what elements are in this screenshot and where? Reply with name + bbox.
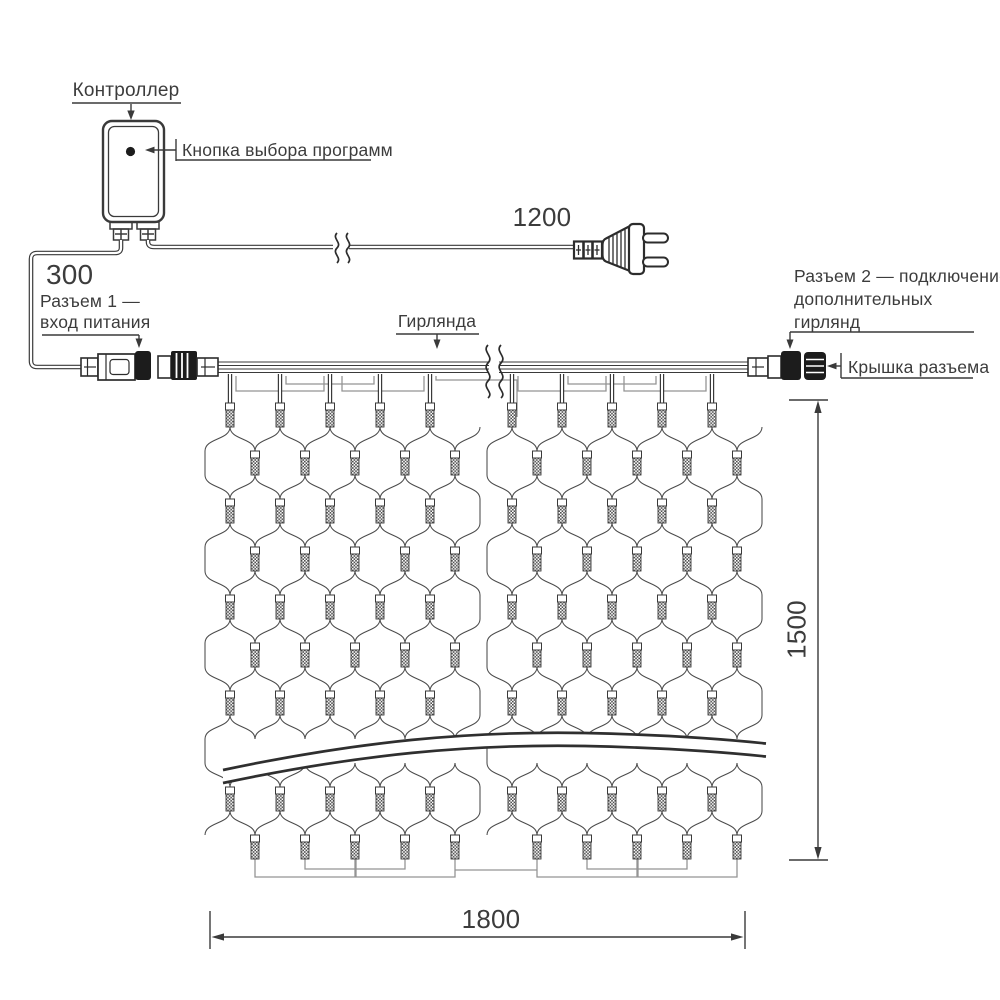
lamp — [426, 506, 434, 523]
lamp — [251, 554, 259, 571]
connector1-sublabel: вход питания — [40, 311, 150, 334]
net-width-label: 1800 — [450, 904, 532, 935]
lamp — [301, 650, 309, 667]
lamp-cap — [326, 787, 335, 794]
lamp — [658, 698, 666, 715]
lamp — [708, 794, 716, 811]
lamp — [226, 602, 234, 619]
lamp — [376, 506, 384, 523]
net-mesh — [205, 427, 762, 835]
lamp — [326, 698, 334, 715]
connector2-label-line2: дополнительных — [794, 288, 933, 311]
controller-label: Контроллер — [70, 80, 182, 102]
lamp — [708, 602, 716, 619]
lamp — [376, 602, 384, 619]
lamp — [558, 698, 566, 715]
lamp-cap — [708, 787, 717, 794]
lamp-cap — [451, 451, 460, 458]
lamp-cap — [558, 691, 567, 698]
lamp-cap — [558, 787, 567, 794]
lamp — [533, 554, 541, 571]
lamp-cap — [376, 595, 385, 602]
diagram-canvas: Контроллер Кнопка выбора программ 1200 3… — [0, 0, 1000, 1000]
lamp — [426, 698, 434, 715]
lamp — [633, 554, 641, 571]
lamp — [451, 554, 459, 571]
cord-length-label: 1200 — [510, 202, 574, 233]
plug-pins — [643, 234, 668, 267]
lamp — [351, 458, 359, 475]
lamp-cap — [508, 403, 517, 410]
lamp — [276, 506, 284, 523]
lamp — [683, 842, 691, 859]
lamp-cap — [658, 595, 667, 602]
lamp — [658, 410, 666, 427]
lamp-cap — [401, 835, 410, 842]
lamp-cap — [326, 403, 335, 410]
lead-length-label: 300 — [46, 259, 93, 291]
lamp — [326, 410, 334, 427]
connector1-label: Разъем 1 — — [40, 290, 140, 313]
lamp-cap — [451, 547, 460, 554]
lamp — [326, 506, 334, 523]
connector-2 — [748, 351, 826, 380]
lamp — [301, 458, 309, 475]
lamp — [351, 650, 359, 667]
lamp — [226, 506, 234, 523]
lamp-cap — [226, 499, 235, 506]
lamp — [508, 506, 516, 523]
lamp — [508, 410, 516, 427]
program-select-button — [126, 147, 135, 156]
lamp — [276, 698, 284, 715]
lamp-cap — [376, 403, 385, 410]
lamp — [558, 602, 566, 619]
lamp — [733, 842, 741, 859]
lamp — [608, 602, 616, 619]
rope-overlay — [223, 733, 766, 783]
lamp-cap — [583, 547, 592, 554]
lamp-cap — [426, 403, 435, 410]
lamp-cap — [351, 547, 360, 554]
lamp-cap — [451, 643, 460, 650]
lamp-cap — [276, 499, 285, 506]
lamp — [451, 458, 459, 475]
garland-bus-wires — [218, 362, 748, 373]
lamp-cap — [608, 595, 617, 602]
connector-cap — [804, 352, 826, 380]
lamp-cap — [608, 403, 617, 410]
lamp-cap — [708, 499, 717, 506]
connector2-leader-arrow — [787, 332, 975, 349]
lamp-cap — [426, 595, 435, 602]
lamp-cap — [533, 643, 542, 650]
lamp-cap — [733, 643, 742, 650]
cord-break-mark — [335, 233, 349, 263]
controller-box — [103, 121, 164, 240]
lamp — [583, 842, 591, 859]
lamp-cap — [226, 691, 235, 698]
lamp — [376, 698, 384, 715]
lamp-cap — [426, 787, 435, 794]
lamp — [633, 458, 641, 475]
lamp-cap — [376, 691, 385, 698]
connector1-female — [158, 351, 218, 380]
garland-diagram — [0, 0, 1000, 1000]
lamp-cap — [658, 499, 667, 506]
lamp-cap — [683, 547, 692, 554]
lamp-cap — [326, 595, 335, 602]
lamp-cap — [583, 643, 592, 650]
lamp-cap — [251, 835, 260, 842]
lamp — [251, 458, 259, 475]
lamp — [326, 794, 334, 811]
lamp — [276, 410, 284, 427]
lamp-cap — [708, 595, 717, 602]
bus-break-mark — [486, 345, 503, 398]
net-height-label: 1500 — [782, 589, 813, 671]
lamp-cap — [558, 499, 567, 506]
lamp — [426, 794, 434, 811]
lamp-cap — [683, 451, 692, 458]
lamp-cap — [226, 787, 235, 794]
lamp-cap — [251, 547, 260, 554]
lamp — [251, 842, 259, 859]
lamp-cap — [508, 787, 517, 794]
lamp — [226, 410, 234, 427]
lamp-cap — [351, 451, 360, 458]
lamp — [301, 554, 309, 571]
lamp — [351, 842, 359, 859]
lamp-cap — [351, 643, 360, 650]
connector2-label-line3: гирлянд — [794, 311, 860, 334]
lamp — [226, 698, 234, 715]
lamp-cap — [251, 643, 260, 650]
lamp — [708, 506, 716, 523]
lamp — [608, 506, 616, 523]
lamp — [276, 794, 284, 811]
lamp — [533, 458, 541, 475]
lamp-cap — [633, 643, 642, 650]
plug-ferrule — [574, 242, 602, 259]
lamp — [451, 842, 459, 859]
lamp — [276, 602, 284, 619]
lamp-cap — [658, 691, 667, 698]
lamp-cap — [301, 835, 310, 842]
lamp — [508, 602, 516, 619]
program-button-label: Кнопка выбора программ — [182, 139, 393, 162]
lamp — [658, 794, 666, 811]
lamp-cap — [276, 403, 285, 410]
lamp — [533, 650, 541, 667]
lamp — [401, 650, 409, 667]
lamp — [376, 410, 384, 427]
lamp — [401, 458, 409, 475]
lamp-cap — [583, 451, 592, 458]
lamp-cap — [733, 451, 742, 458]
lamp-cap — [533, 835, 542, 842]
lamp — [226, 794, 234, 811]
lamp — [301, 842, 309, 859]
lamp-cap — [533, 547, 542, 554]
lamp-cap — [708, 691, 717, 698]
lamp-cap — [508, 691, 517, 698]
lamp-cap — [508, 499, 517, 506]
lamp — [683, 554, 691, 571]
lamp-cap — [326, 691, 335, 698]
lamp-cap — [633, 835, 642, 842]
lamp — [401, 554, 409, 571]
net-lamps — [226, 403, 742, 859]
lamp-cap — [276, 691, 285, 698]
lamp-cap — [658, 403, 667, 410]
connector2-label-line1: Разъем 2 — подключение — [794, 265, 1000, 288]
lamp-cap — [608, 499, 617, 506]
lamp — [533, 842, 541, 859]
lamp — [708, 698, 716, 715]
lamp — [608, 698, 616, 715]
net-drop-wires — [230, 374, 712, 403]
lamp-cap — [301, 547, 310, 554]
lamp — [558, 410, 566, 427]
lamp-cap — [426, 499, 435, 506]
lamp-cap — [583, 835, 592, 842]
lamp — [583, 650, 591, 667]
lamp-cap — [558, 595, 567, 602]
lamp-cap — [733, 547, 742, 554]
lamp-cap — [301, 643, 310, 650]
lamp-cap — [376, 787, 385, 794]
lamp — [558, 794, 566, 811]
lamp-cap — [376, 499, 385, 506]
lamp-cap — [301, 451, 310, 458]
lamp-cap — [683, 643, 692, 650]
lamp — [733, 650, 741, 667]
lamp-cap — [633, 547, 642, 554]
lamp-cap — [633, 451, 642, 458]
lamp-cap — [533, 451, 542, 458]
lamp-cap — [558, 403, 567, 410]
lamp-cap — [226, 595, 235, 602]
lamp-cap — [708, 403, 717, 410]
lamp-cap — [608, 787, 617, 794]
lamp — [633, 842, 641, 859]
power-plug — [574, 224, 668, 274]
lamp-cap — [508, 595, 517, 602]
lamp-cap — [401, 547, 410, 554]
lamp — [426, 410, 434, 427]
lamp-cap — [226, 403, 235, 410]
lamp — [251, 650, 259, 667]
connector1-leader-arrow — [42, 335, 143, 348]
lamp — [683, 650, 691, 667]
lamp-cap — [326, 499, 335, 506]
lamp — [708, 410, 716, 427]
controller-grommets — [110, 222, 159, 240]
lamp-cap — [401, 643, 410, 650]
connector-1 — [81, 351, 218, 380]
garland-label: Гирлянда — [394, 310, 480, 333]
lamp-cap — [251, 451, 260, 458]
lamp — [658, 602, 666, 619]
garland-leader-arrow — [396, 334, 479, 349]
lamp — [683, 458, 691, 475]
connector-cap-label: Крышка разъема — [848, 356, 989, 379]
lamp — [508, 698, 516, 715]
lamp — [633, 650, 641, 667]
lamp — [733, 458, 741, 475]
lamp — [351, 554, 359, 571]
lamp-cap — [658, 787, 667, 794]
plug-face-plate — [629, 224, 644, 274]
lamp — [608, 794, 616, 811]
lamp-cap — [401, 451, 410, 458]
lamp — [658, 506, 666, 523]
power-cord — [148, 233, 574, 263]
lamp — [583, 554, 591, 571]
lamp — [558, 506, 566, 523]
lamp — [583, 458, 591, 475]
lamp — [508, 794, 516, 811]
lamp — [608, 410, 616, 427]
controller-leader-arrow — [72, 103, 181, 120]
lamp — [733, 554, 741, 571]
lamp — [326, 602, 334, 619]
lamp — [376, 794, 384, 811]
garland-net — [205, 374, 762, 877]
lamp-cap — [276, 787, 285, 794]
lamp — [451, 650, 459, 667]
lamp-cap — [608, 691, 617, 698]
connector1-male — [81, 351, 151, 380]
lamp-cap — [276, 595, 285, 602]
plug-body — [603, 226, 631, 271]
lamp-cap — [351, 835, 360, 842]
lamp-cap — [426, 691, 435, 698]
lamp-cap — [683, 835, 692, 842]
lamp-cap — [733, 835, 742, 842]
lamp — [401, 842, 409, 859]
lamp — [426, 602, 434, 619]
lamp-cap — [451, 835, 460, 842]
